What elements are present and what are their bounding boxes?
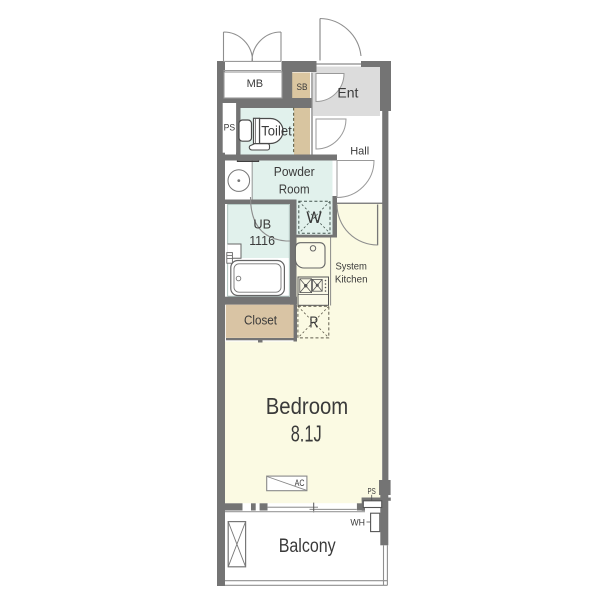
svg-text:UB: UB [253, 216, 271, 231]
svg-text:MB: MB [247, 78, 264, 90]
svg-text:WH: WH [350, 517, 365, 527]
svg-text:8.1J: 8.1J [291, 420, 322, 446]
svg-text:AC: AC [295, 478, 305, 488]
svg-text:PS: PS [224, 123, 236, 133]
svg-text:Bedroom: Bedroom [266, 393, 349, 419]
svg-text:SB: SB [297, 81, 308, 92]
svg-text:Toilet: Toilet [261, 124, 292, 139]
svg-text:Powder: Powder [274, 164, 315, 179]
svg-text:System: System [335, 261, 367, 273]
svg-text:Ent: Ent [337, 85, 358, 101]
svg-text:W: W [306, 209, 322, 227]
svg-text:1116: 1116 [249, 233, 275, 248]
svg-text:Room: Room [279, 182, 310, 197]
svg-text:Balcony: Balcony [279, 536, 336, 557]
svg-text:Closet: Closet [244, 314, 277, 328]
svg-text:Hall: Hall [350, 146, 369, 158]
svg-text:R: R [309, 315, 318, 332]
svg-text:Kitchen: Kitchen [335, 273, 368, 285]
